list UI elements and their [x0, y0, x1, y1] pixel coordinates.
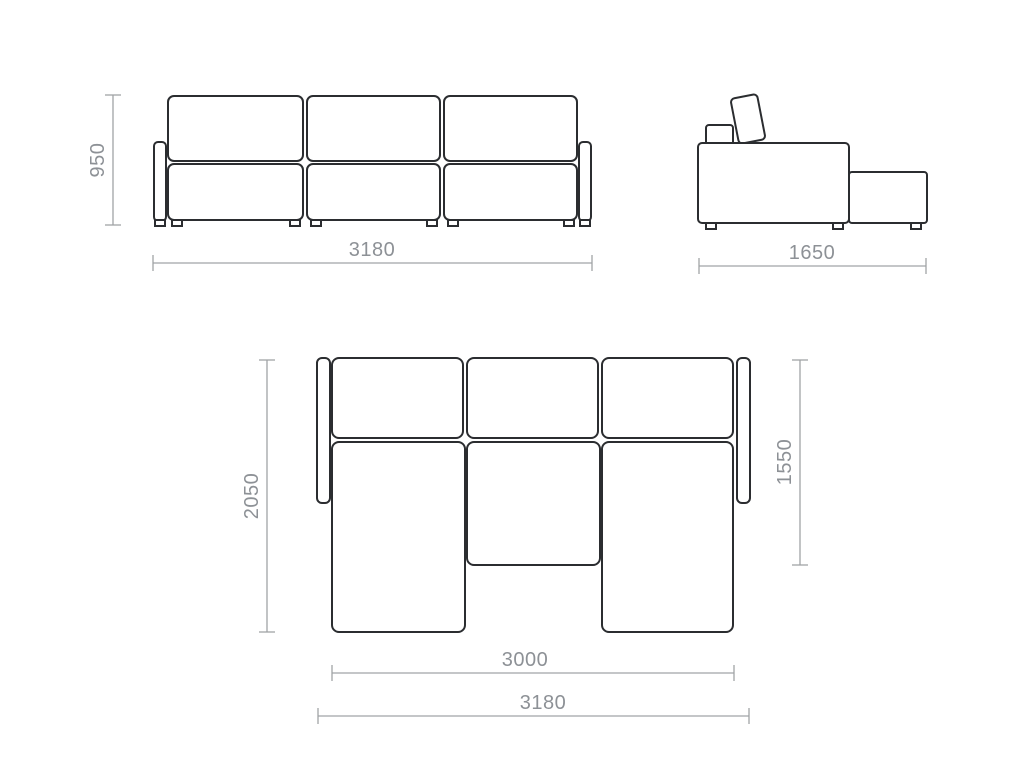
- dimension-plan-width-inner-label: 3000: [502, 649, 549, 671]
- dimension-plan-width-inner: 3000: [332, 649, 734, 681]
- dimension-plan-depth-total-label: 2050: [241, 473, 263, 520]
- front-foot-6: [448, 220, 458, 226]
- dimension-plan-width-total: 3180: [318, 692, 749, 724]
- front-foot-5: [427, 220, 437, 226]
- plan-module-center: [467, 442, 600, 565]
- plan-module-right: [602, 442, 733, 632]
- front-seat-3: [444, 164, 577, 220]
- front-foot-2: [172, 220, 182, 226]
- front-view: [154, 96, 591, 226]
- front-foot-8: [580, 220, 590, 226]
- side-foot-3: [911, 223, 921, 229]
- dimension-front-height-label: 950: [87, 143, 109, 178]
- side-chaise-extension: [849, 172, 927, 223]
- front-back-cushion-1: [168, 96, 303, 161]
- dimension-side-depth: 1650: [699, 242, 926, 274]
- plan-view: [317, 358, 750, 632]
- dimension-side-depth-label: 1650: [789, 242, 836, 264]
- dimension-front-width-label: 3180: [349, 239, 396, 261]
- dimension-plan-depth-chaise-label: 1550: [774, 439, 796, 486]
- sofa-technical-drawing-page: 950 3180 1650: [0, 0, 1024, 768]
- side-back-cushion: [730, 94, 765, 144]
- plan-back-cushion-2: [467, 358, 598, 438]
- plan-module-left: [332, 442, 465, 632]
- plan-back-cushion-3: [602, 358, 733, 438]
- dimension-plan-depth-chaise: 1550: [774, 360, 808, 565]
- front-armrest-right: [579, 142, 591, 221]
- front-seat-2: [307, 164, 440, 220]
- dimension-plan-width-total-label: 3180: [520, 692, 567, 714]
- sofa-drawing-canvas: 950 3180 1650: [0, 0, 1024, 768]
- dimension-plan-depth-total: 2050: [241, 360, 275, 632]
- front-back-cushion-3: [444, 96, 577, 161]
- plan-armrest-right: [737, 358, 750, 503]
- dimension-front-width: 3180: [153, 239, 592, 271]
- side-body: [698, 143, 849, 223]
- side-foot-2: [833, 223, 843, 229]
- side-foot-1: [706, 223, 716, 229]
- front-armrest-left: [154, 142, 166, 221]
- dimension-front-height: 950: [87, 95, 121, 225]
- side-view: [698, 94, 927, 229]
- front-foot-1: [155, 220, 165, 226]
- front-seat-1: [168, 164, 303, 220]
- front-back-cushion-2: [307, 96, 440, 161]
- front-foot-7: [564, 220, 574, 226]
- plan-armrest-left: [317, 358, 330, 503]
- plan-back-cushion-1: [332, 358, 463, 438]
- front-foot-4: [311, 220, 321, 226]
- front-foot-3: [290, 220, 300, 226]
